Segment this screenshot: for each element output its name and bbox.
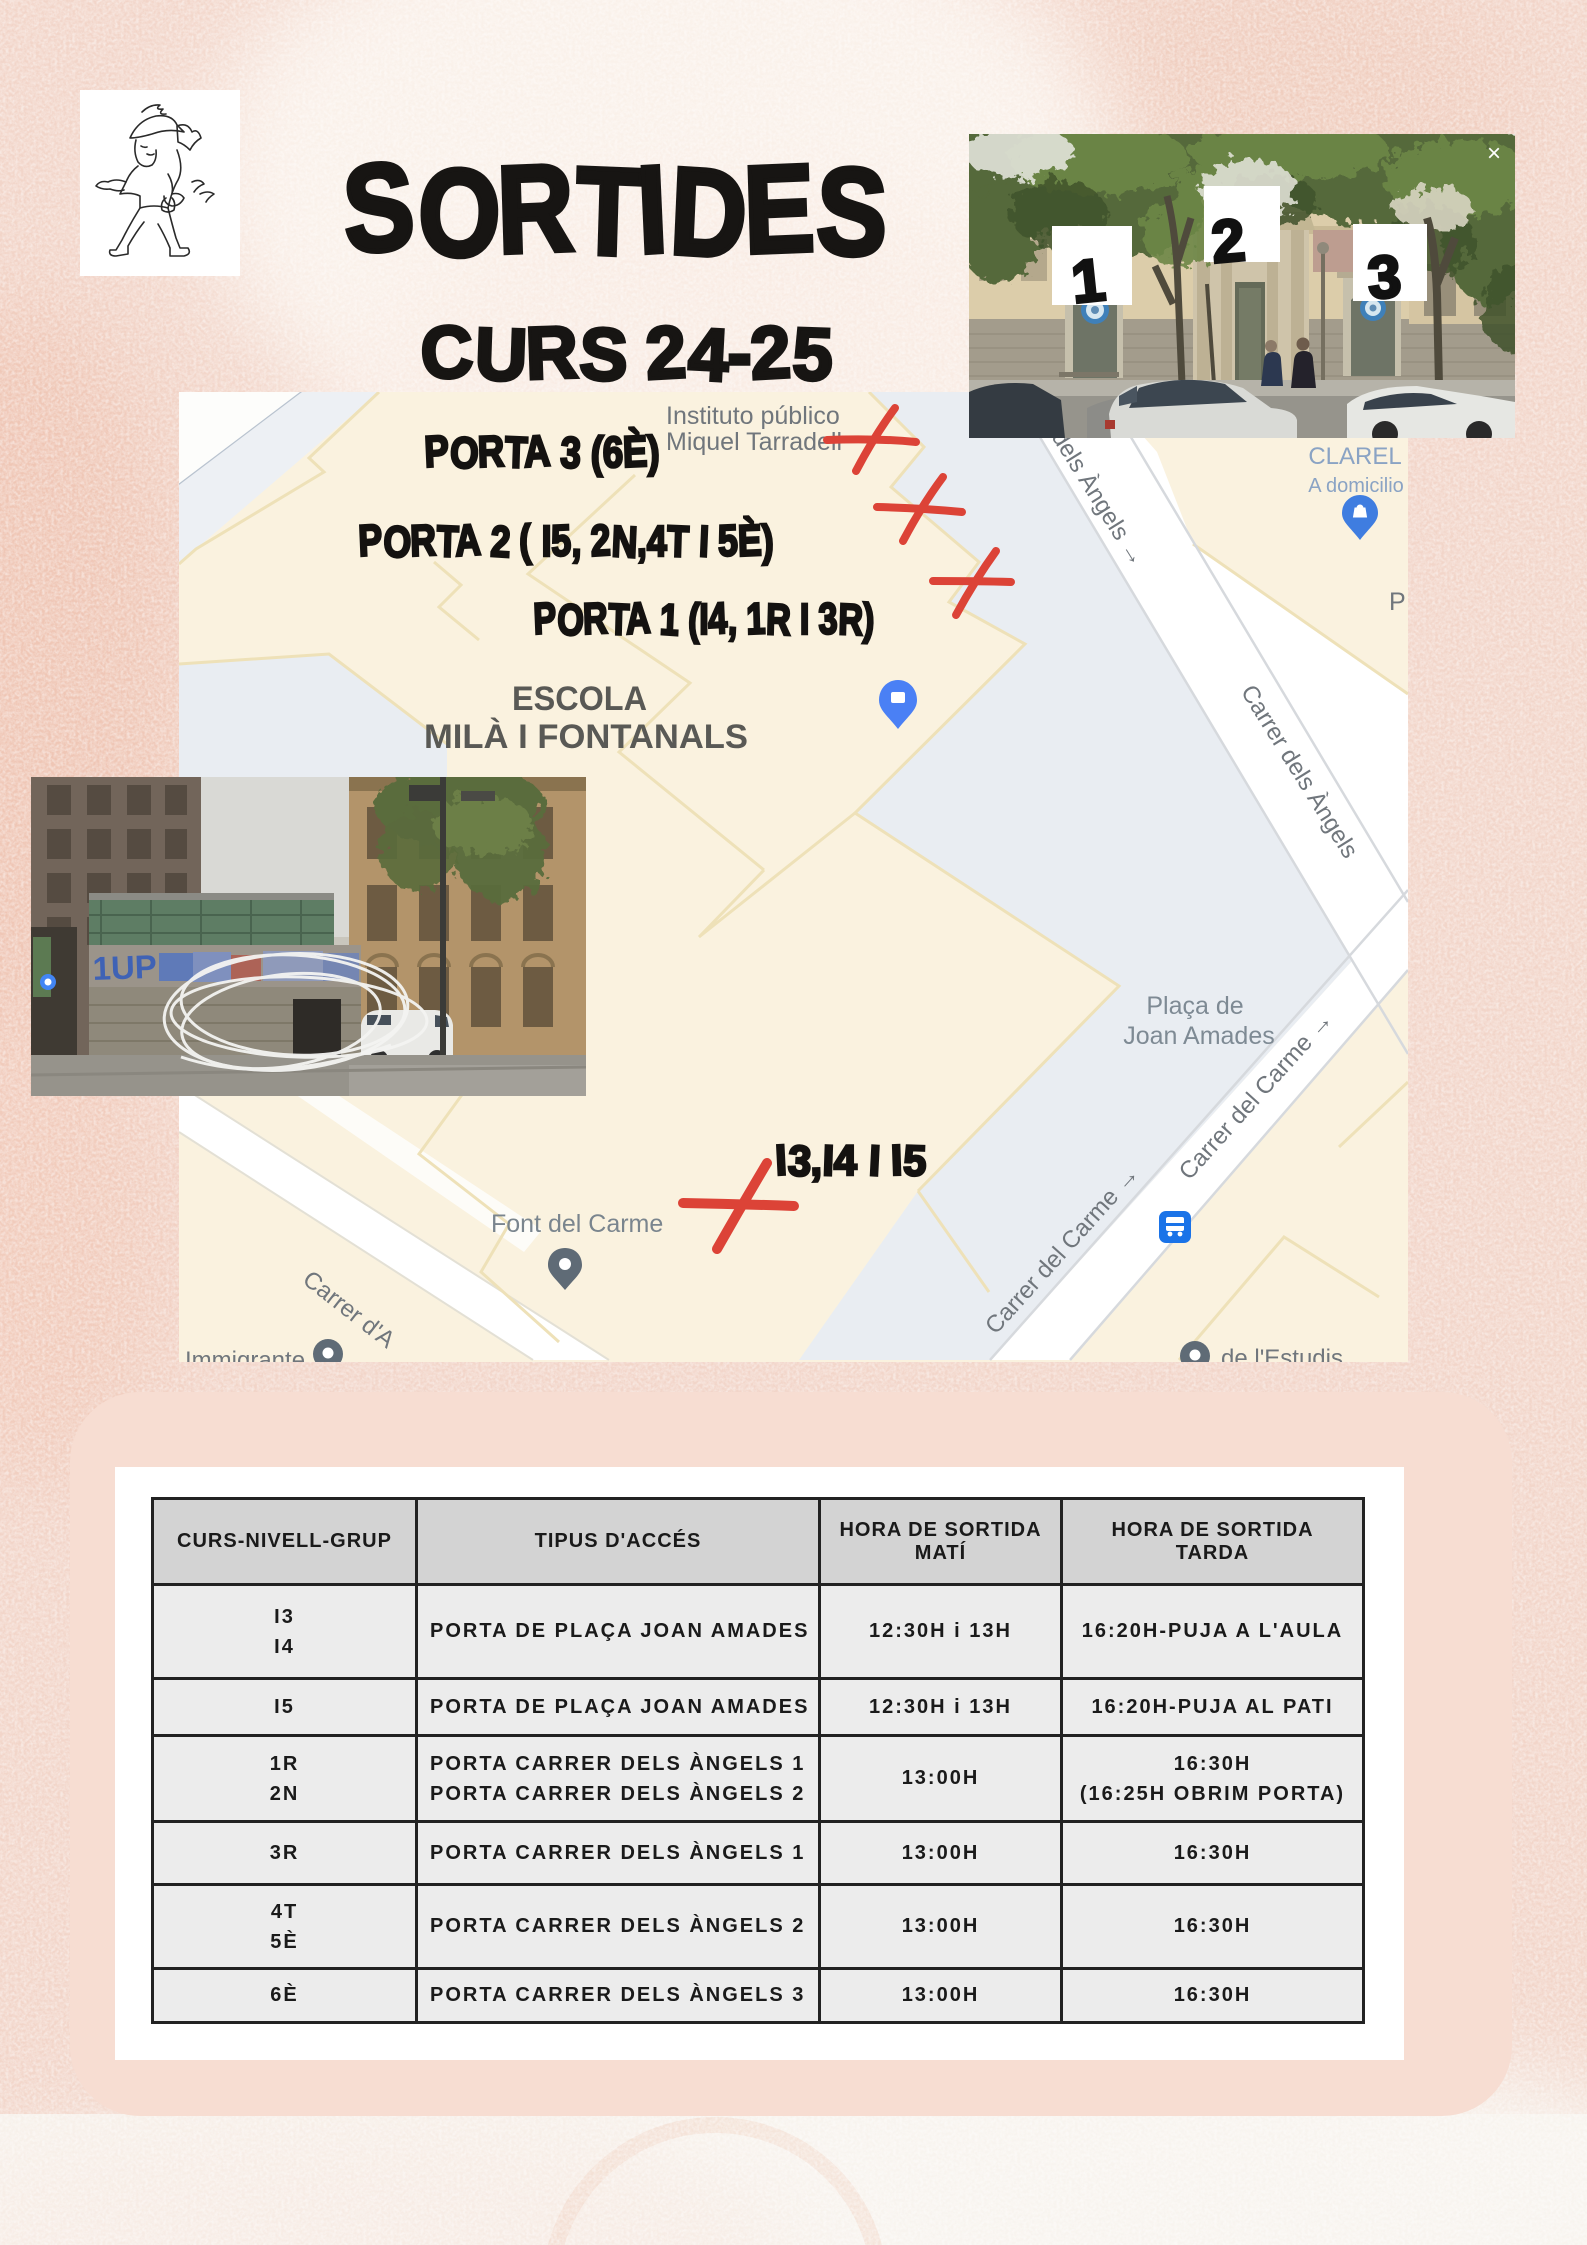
svg-text:3: 3 xyxy=(1365,242,1403,311)
svg-text:Joan Amades: Joan Amades xyxy=(1123,1022,1275,1050)
svg-text:×: × xyxy=(1487,140,1501,167)
svg-text:Font del Carme: Font del Carme xyxy=(491,1210,663,1238)
svg-text:A domicilio: A domicilio xyxy=(1308,475,1404,497)
svg-text:Immigrante: Immigrante xyxy=(185,1347,305,1362)
svg-text:CLAREL: CLAREL xyxy=(1308,443,1401,470)
svg-text:SORTIDES: SORTIDES xyxy=(338,140,890,284)
svg-text:de l'Estudis: de l'Estudis xyxy=(1221,1345,1343,1362)
svg-text:2: 2 xyxy=(1209,206,1248,276)
svg-text:PORTA 3 (6È): PORTA 3 (6È) xyxy=(423,426,660,478)
svg-text:1: 1 xyxy=(1068,246,1108,316)
svg-text:1UP: 1UP xyxy=(92,948,157,987)
svg-text:ESCOLA: ESCOLA xyxy=(512,680,647,718)
svg-text:Plaça de: Plaça de xyxy=(1146,992,1243,1020)
svg-text:P: P xyxy=(1389,588,1406,616)
